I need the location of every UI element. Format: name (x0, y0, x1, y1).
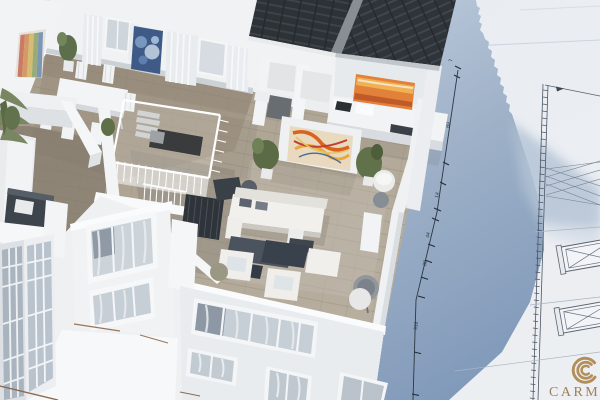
svg-text:CARM: CARM (549, 385, 600, 400)
svg-text:916: 916 (413, 321, 420, 330)
